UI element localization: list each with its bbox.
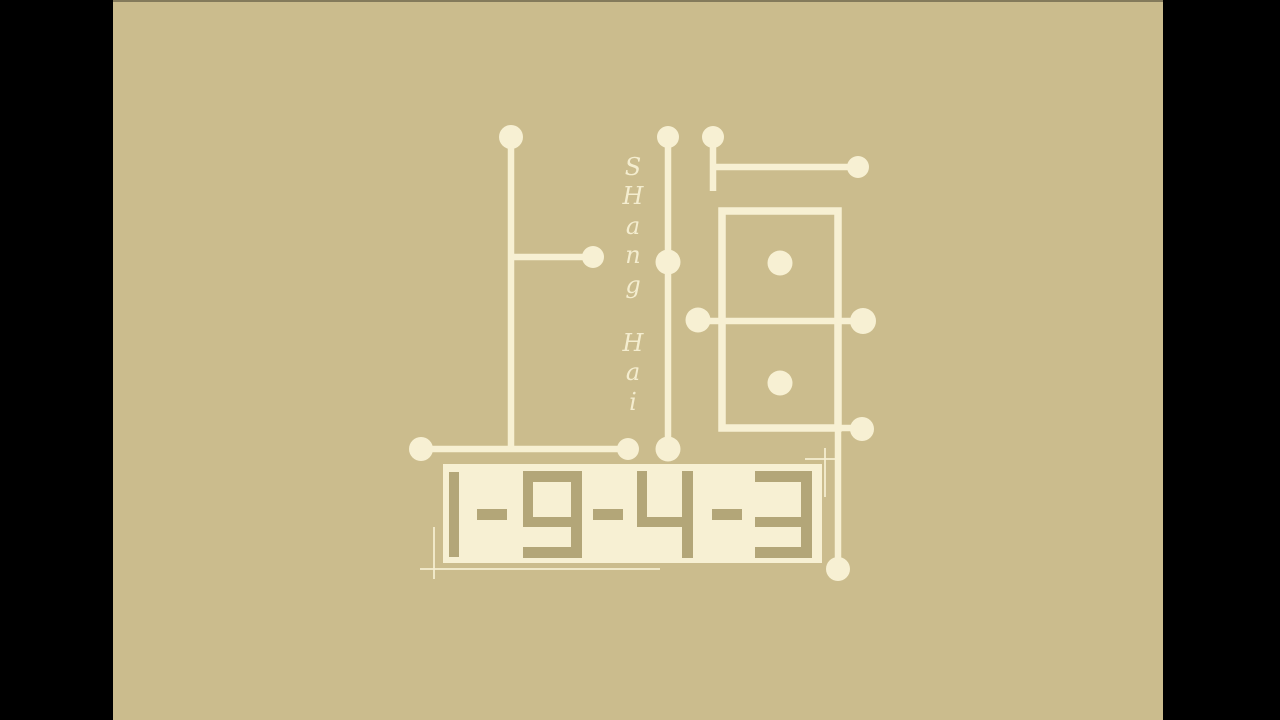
year-dash-segment: [593, 509, 623, 520]
node-dot: [582, 246, 604, 268]
year-dash-segment: [477, 509, 507, 520]
node-dot: [656, 437, 681, 462]
node-dot: [850, 308, 876, 334]
hai-inner-dot-bottom: [768, 371, 793, 396]
node-dot: [847, 156, 869, 178]
node-dot: [499, 125, 523, 149]
hai-water-radical: [656, 126, 681, 462]
year-digit-segment: [637, 517, 693, 527]
video-frame: SHangHai: [0, 0, 1280, 720]
year-digit-segment: [449, 472, 459, 557]
year-digit-segment: [571, 471, 582, 558]
shang-character-art: [409, 125, 639, 461]
year-digit-segment: [801, 471, 812, 558]
hai-inner-dot-top: [768, 251, 793, 276]
year-dash-segment: [712, 509, 742, 520]
shanghai-title-art: [0, 0, 1280, 720]
node-dot: [409, 437, 433, 461]
node-dot: [617, 438, 639, 460]
node-dot: [686, 308, 711, 333]
letterbox-right: [1163, 0, 1280, 720]
node-dot: [826, 557, 850, 581]
node-dot: [702, 126, 724, 148]
year-digit-segment: [755, 547, 812, 558]
year-digit-segment: [755, 517, 812, 527]
node-dot: [657, 126, 679, 148]
year-digit-segment: [523, 547, 582, 558]
year-digit-segment: [682, 471, 693, 558]
letterbox-left: [0, 0, 113, 720]
year-digit-segment: [523, 517, 582, 527]
node-dot: [656, 250, 681, 275]
frame-top-edge: [0, 0, 1280, 2]
node-dot: [850, 417, 874, 441]
